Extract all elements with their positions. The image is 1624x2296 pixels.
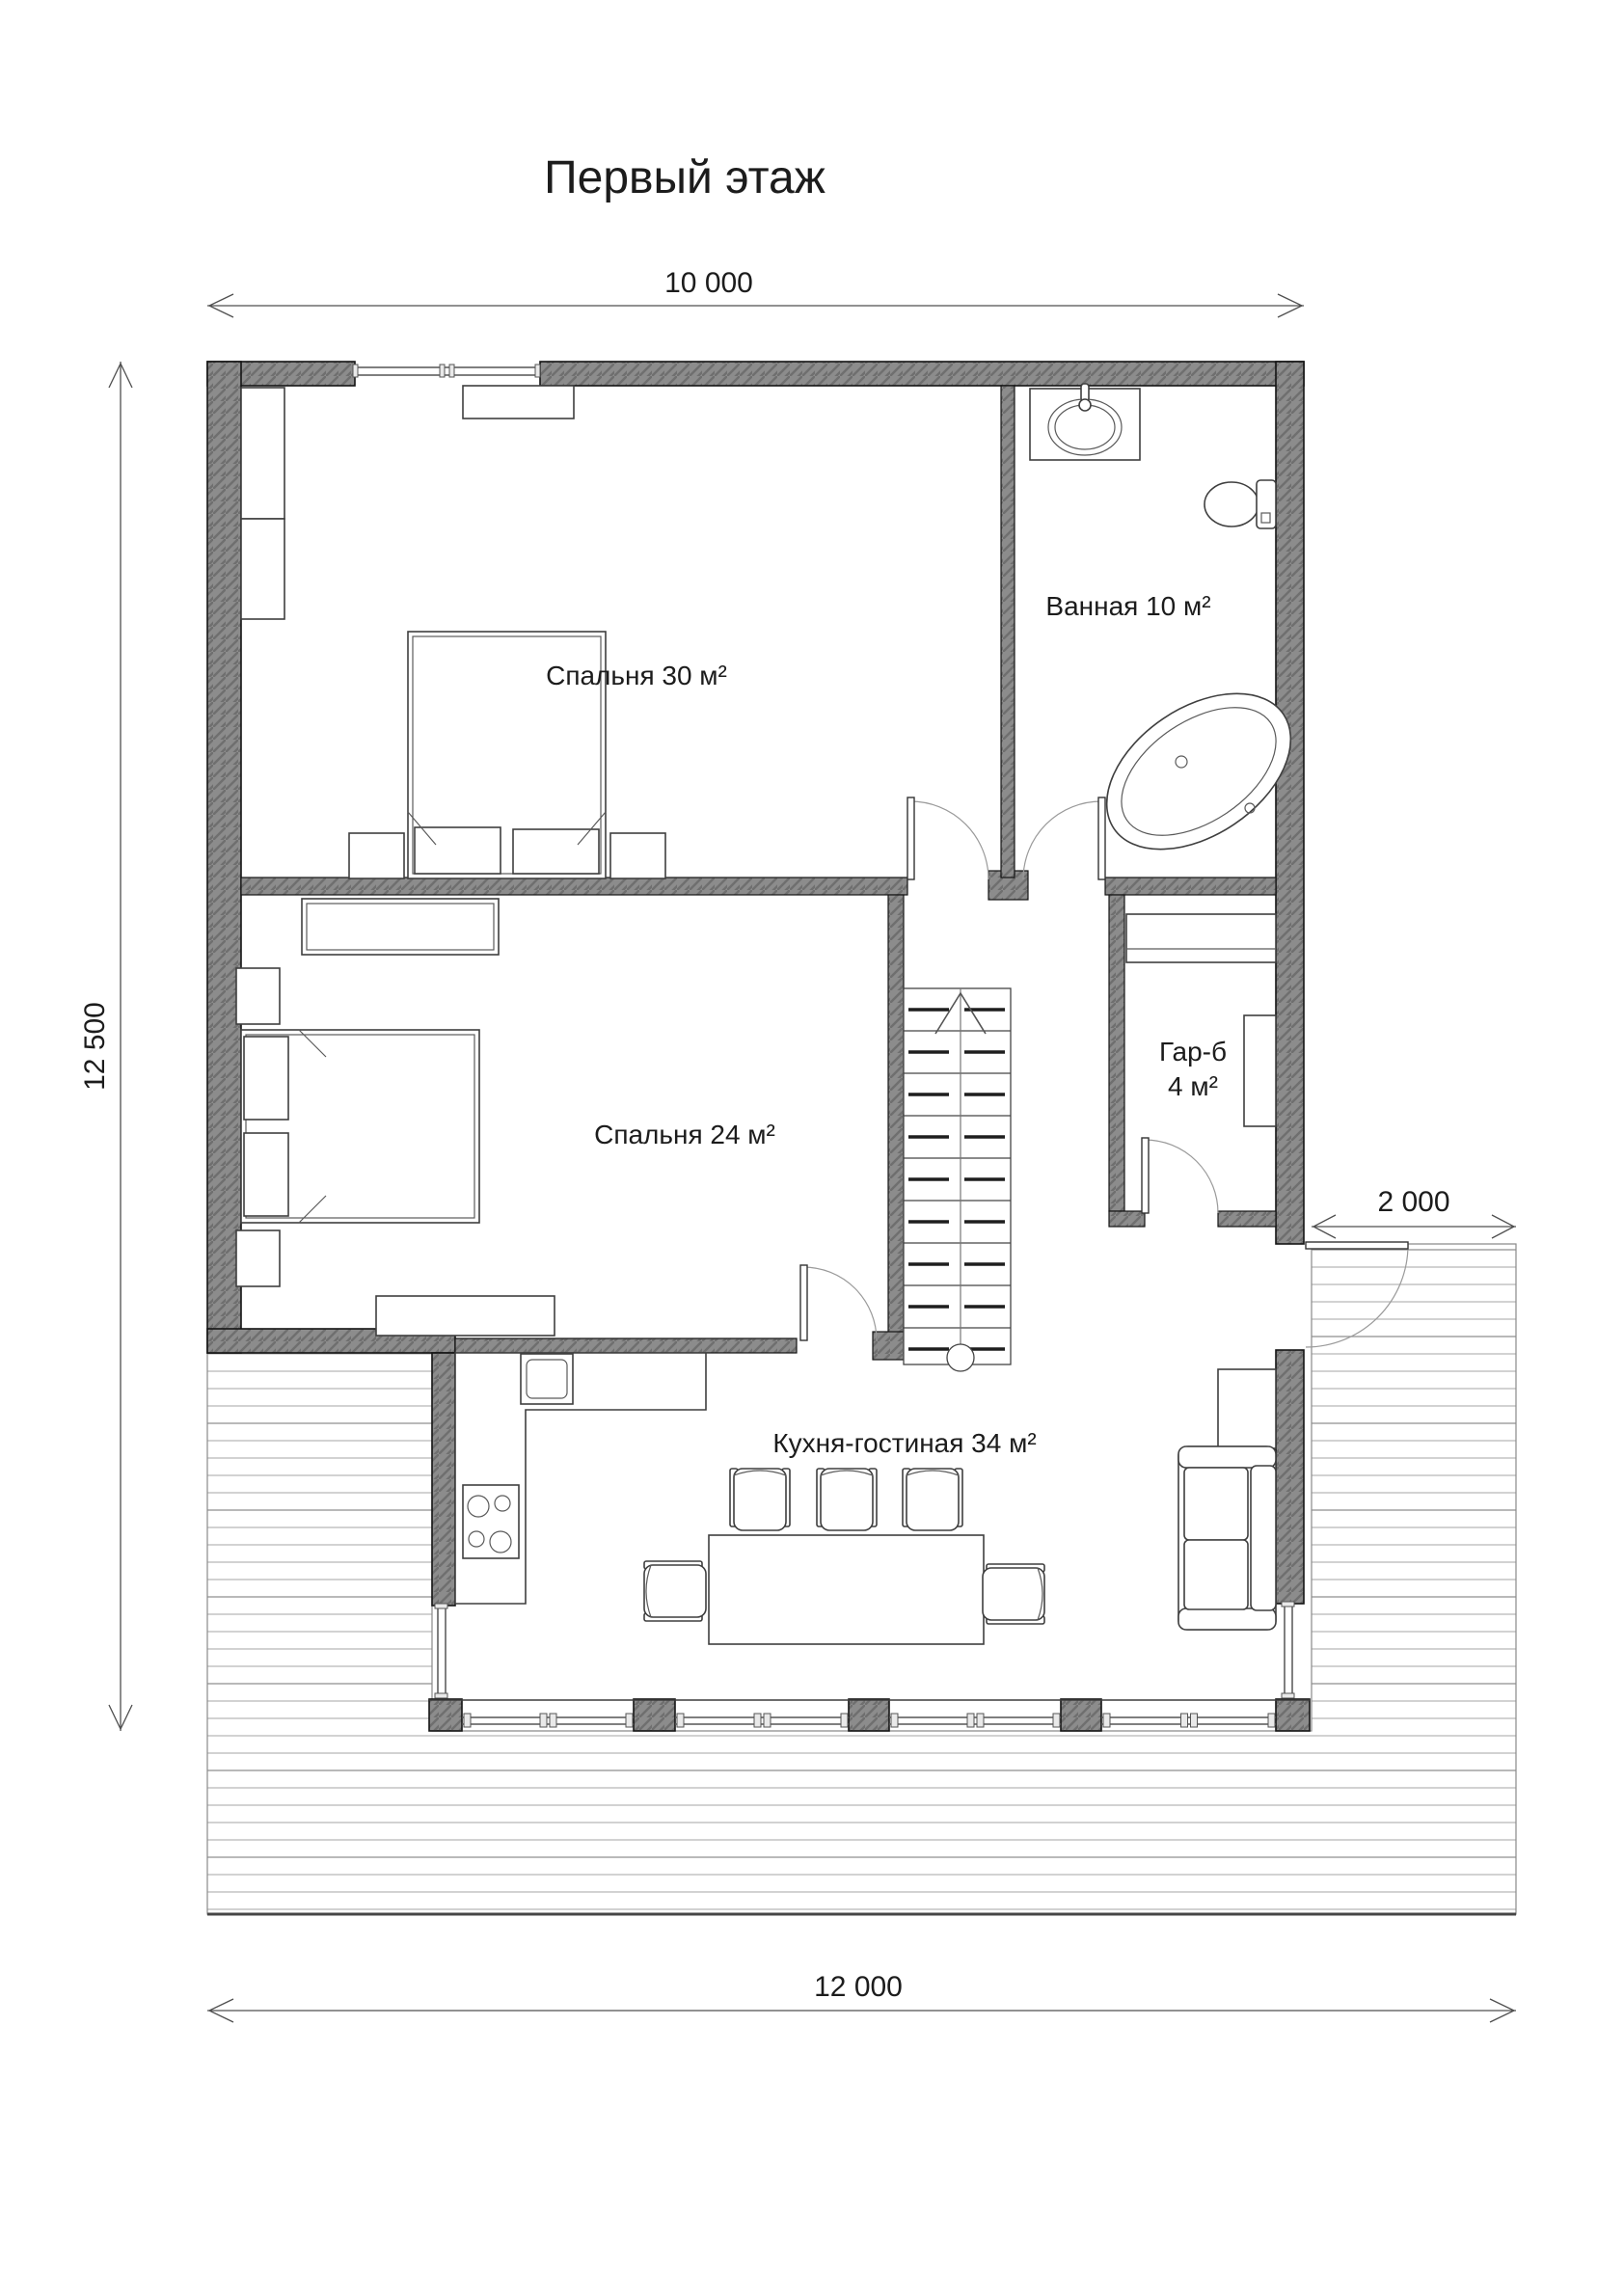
pillar-south-3 [1061,1699,1101,1731]
wall-east-upper [1276,362,1304,1244]
room-label-wardrobe-area: 4 м² [1168,1071,1218,1101]
wall-wardrobe-south-east [1218,1211,1276,1227]
door-swing-icon [1023,797,1105,879]
closet-icon [241,519,284,619]
wall-top-right [540,362,1304,386]
dimension-top-label: 10 000 [664,267,753,299]
bedroom30-furniture [241,386,665,878]
wall-left [207,362,241,1353]
dimension-bottom: 12 000 [207,1971,1516,2022]
dimension-bottom-label: 12 000 [814,1971,903,2003]
nightstand-icon [236,1230,280,1286]
stairs [904,988,1011,1371]
bed-icon [241,1030,479,1223]
wall-east-mid [1276,1350,1304,1604]
wall-bathroom-south [1105,878,1276,895]
wall-bedrooms-divider [241,878,907,895]
nightstand-icon [349,833,404,878]
kitchen-furniture [455,1353,1276,1644]
window-icon [1282,1602,1294,1698]
nightstand-icon [610,833,665,878]
wall-stub-kitchen-door [873,1332,907,1360]
wall-wardrobe-west [1109,895,1124,1211]
pillar-southeast [1276,1699,1310,1731]
dimension-right-label: 2 000 [1377,1186,1449,1218]
toilet-icon [1204,480,1276,528]
window-icon [435,1604,447,1698]
stairs-newel-post [947,1344,974,1371]
dimension-right: 2 000 [1312,1186,1516,1238]
door-swing-icon [800,1265,877,1340]
chair-icon [983,1564,1044,1624]
chair-icon [730,1469,790,1530]
room-label-bedroom30: Спальня 30 м² [546,661,727,690]
closet-icon [1126,914,1276,962]
chair-icon [903,1469,962,1530]
chair-icon [644,1561,706,1621]
kitchen-sink-icon [521,1354,573,1404]
wall-stair-west [888,895,904,1353]
wall-bedroom30-bathroom [1001,386,1015,878]
dresser-icon [463,386,574,419]
side-table-icon [1218,1369,1276,1448]
room-label-kitchen: Кухня-гостиная 34 м² [772,1428,1036,1458]
closet-icon [302,899,499,955]
pillar-south-1 [634,1699,675,1731]
sink-icon [1030,384,1140,460]
page-title: Первый этаж [544,152,826,203]
wall-wardrobe-south-west [1109,1211,1145,1227]
chair-icon [817,1469,877,1530]
bedroom24-furniture [236,899,555,1336]
pillar-south-2 [849,1699,889,1731]
sofa-icon [1178,1446,1276,1630]
pillar-southwest [429,1699,462,1731]
stove-icon [463,1485,519,1558]
floor-plan-page: 10 000 12 500 2 000 12 000 Первый этаж С… [0,0,1624,2296]
wall-kitchen-west [432,1353,455,1606]
dimension-left: 12 500 [79,362,132,1731]
closet-icon [241,388,284,519]
window-icon [353,365,540,377]
room-label-bathroom: Ванная 10 м² [1045,591,1210,621]
door-swing-icon [1306,1242,1408,1347]
door-swing-icon [907,797,988,879]
dimension-left-label: 12 500 [79,1002,111,1091]
room-label-wardrobe: Гар-б [1159,1037,1227,1067]
closet-icon [1244,1015,1276,1126]
dining-table [709,1535,984,1644]
room-label-bedroom24: Спальня 24 м² [594,1120,775,1149]
floor-plan: 10 000 12 500 2 000 12 000 Первый этаж С… [0,0,1624,2296]
wall-kitchen-north [455,1338,797,1353]
door-swing-icon [1142,1138,1218,1213]
dresser-icon [376,1296,555,1336]
nightstand-icon [236,968,280,1024]
dimension-top: 10 000 [207,267,1304,317]
